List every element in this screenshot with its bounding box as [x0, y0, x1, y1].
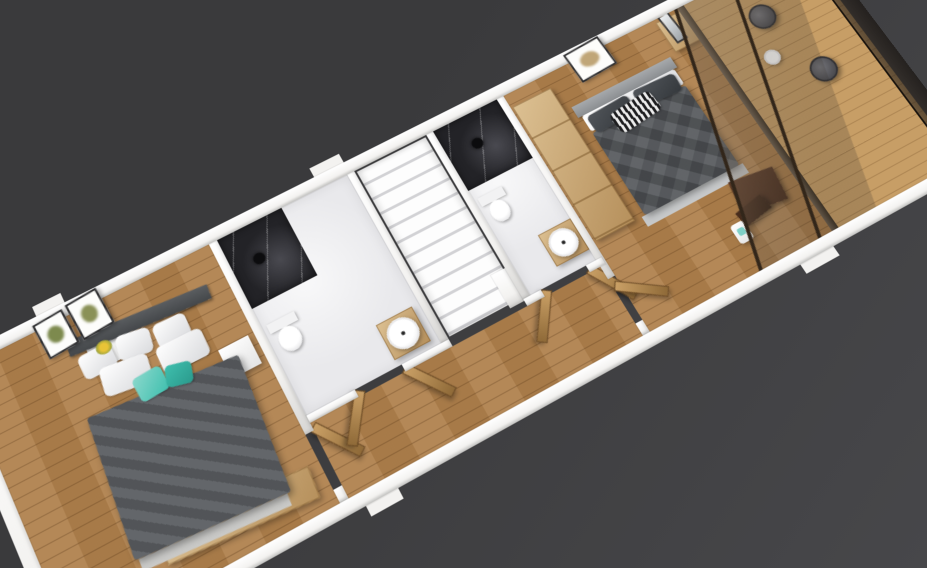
apartment-unit: [0, 0, 927, 568]
floorplan-render: [0, 0, 927, 568]
art-sketch: [77, 301, 101, 325]
art-sketch: [577, 48, 603, 70]
art-sketch: [44, 322, 66, 345]
